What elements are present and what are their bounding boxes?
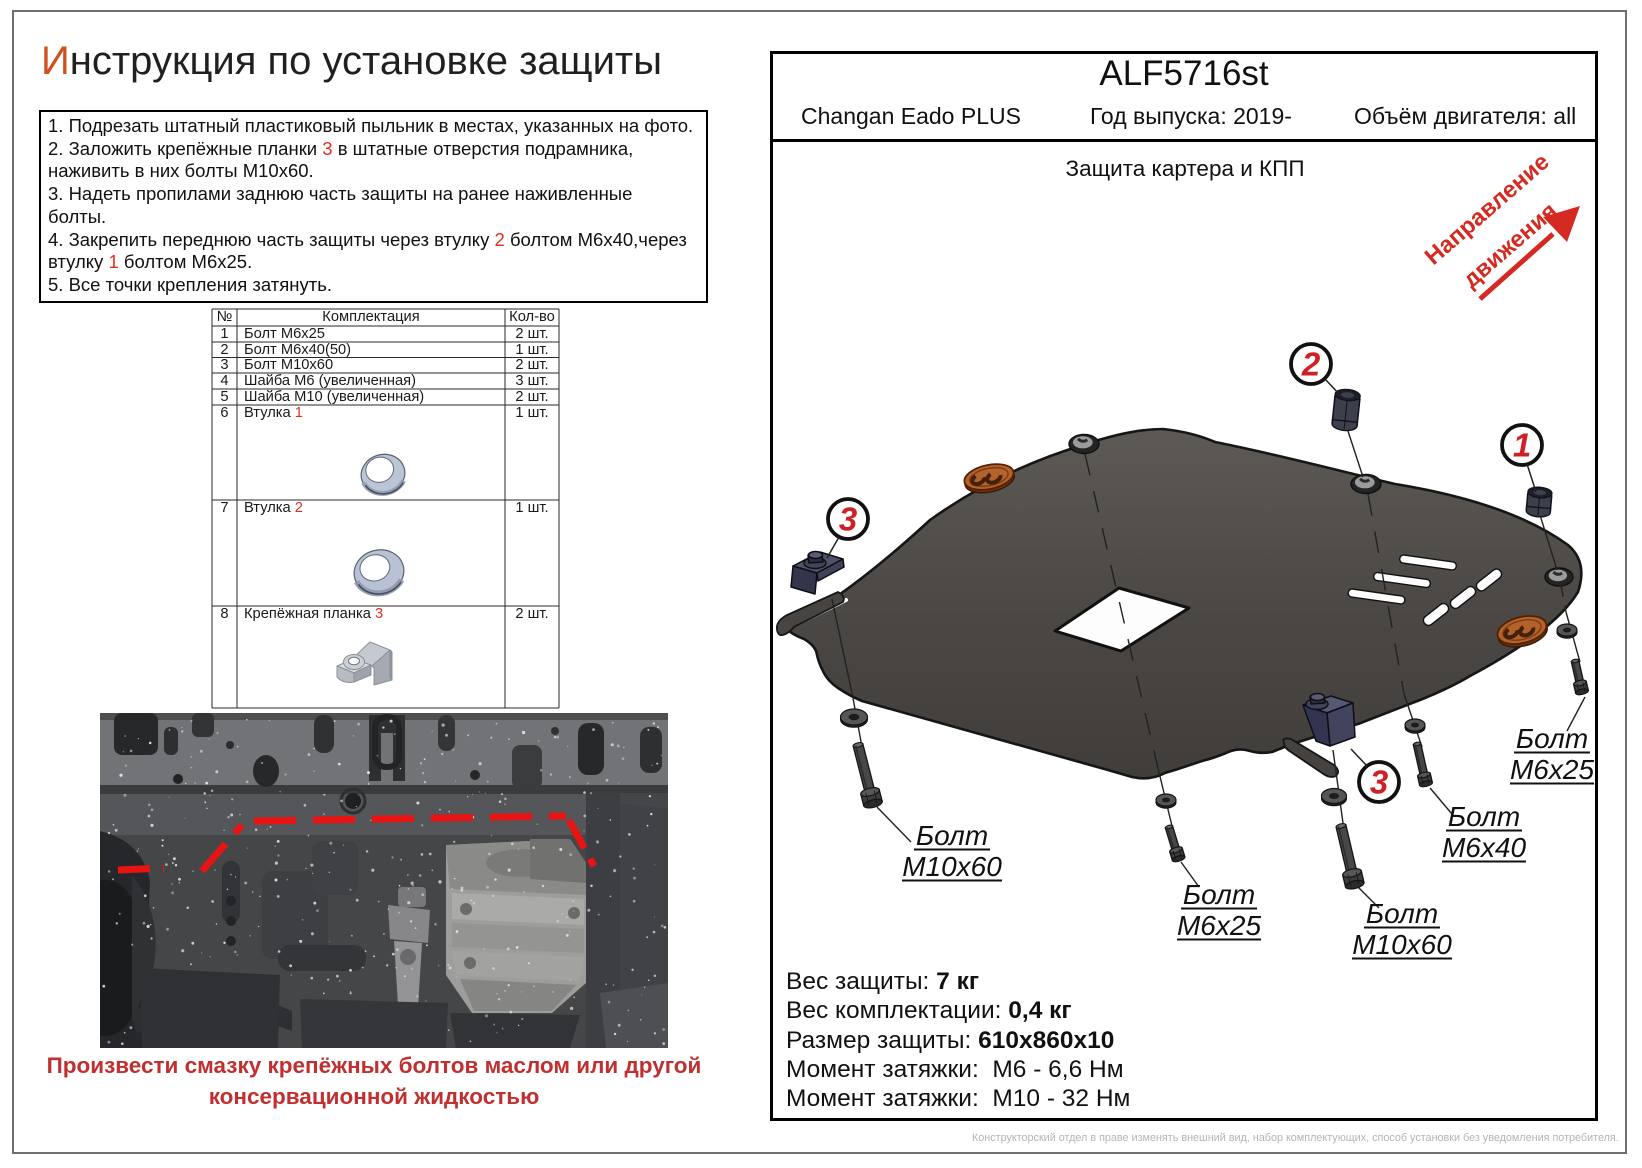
svg-text:Болт: Болт <box>1366 898 1438 929</box>
svg-text:3: 3 <box>1370 764 1388 801</box>
svg-text:Болт: Болт <box>916 820 988 851</box>
svg-text:1: 1 <box>1513 427 1531 464</box>
svg-text:М6х40: М6х40 <box>1442 832 1526 863</box>
svg-text:М10х60: М10х60 <box>902 851 1002 882</box>
svg-text:Болт: Болт <box>1516 723 1588 754</box>
svg-text:М10х60: М10х60 <box>1352 929 1452 960</box>
svg-text:2: 2 <box>1301 346 1321 383</box>
svg-text:3: 3 <box>839 501 857 538</box>
svg-text:М6х25: М6х25 <box>1177 910 1261 941</box>
svg-text:Болт: Болт <box>1183 879 1255 910</box>
svg-text:М6х25: М6х25 <box>1510 754 1594 785</box>
svg-text:Болт: Болт <box>1448 801 1520 832</box>
